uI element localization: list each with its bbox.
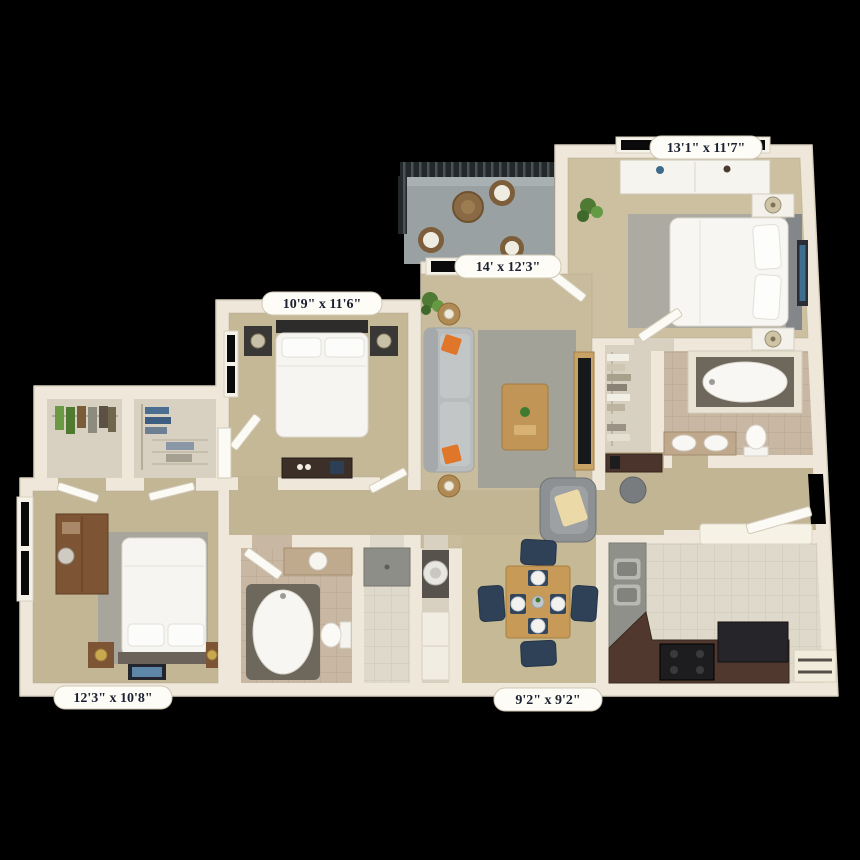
tv-console [574, 352, 594, 470]
side-table [438, 475, 460, 497]
pillow [752, 224, 781, 270]
nightstand [88, 642, 114, 668]
floor-picture [128, 664, 166, 680]
bedroom-2-window [224, 331, 238, 397]
faucet [709, 379, 715, 385]
bathtub [246, 584, 320, 680]
open-door-leaning [218, 428, 231, 478]
tv [578, 358, 591, 464]
master-bed [670, 214, 802, 330]
nightstand [752, 328, 794, 350]
pillow [168, 624, 204, 646]
vanity [284, 548, 352, 575]
armchair [540, 478, 596, 542]
lamp [95, 649, 107, 661]
pillow [325, 338, 364, 357]
dining-chair [520, 539, 556, 566]
balcony-railing [400, 162, 558, 177]
laptop [330, 461, 344, 474]
bathroom-2 [364, 548, 410, 586]
corner-shelf [794, 650, 836, 682]
bottle-decor [724, 166, 731, 173]
pillow [282, 338, 321, 357]
sink [672, 435, 696, 451]
folded-clothes [166, 454, 192, 462]
dimension-label-kitchen: 9'2" x 9'2" [494, 688, 602, 711]
office-chair [620, 477, 646, 503]
pillow [128, 624, 164, 646]
faucet [280, 593, 286, 599]
bed-platform [118, 652, 210, 664]
svg-text:12'3" x 10'8": 12'3" x 10'8" [73, 691, 152, 706]
patio-chair [489, 180, 515, 206]
lamp [377, 334, 391, 348]
floorplan-image: 13'1" x 11'7" 14' x 12'3" 10'9" x 11'6" … [0, 0, 860, 860]
nightstand [206, 642, 218, 668]
balcony [398, 162, 558, 264]
dimension-label-living-room: 14' x 12'3" [455, 255, 561, 278]
vase [656, 166, 664, 174]
sink [309, 552, 327, 570]
toilet [744, 425, 768, 456]
folded-clothes [166, 442, 194, 450]
wall-art [797, 240, 808, 306]
bedroom-3-bed [118, 538, 210, 664]
bedroom-3-dresser [56, 514, 108, 594]
nightstand [370, 326, 398, 356]
desk [282, 458, 352, 478]
nightstand [244, 326, 272, 356]
svg-text:13'1" x 11'7": 13'1" x 11'7" [667, 141, 746, 156]
floorplan-svg: 13'1" x 11'7" 14' x 12'3" 10'9" x 11'6" … [0, 0, 860, 860]
double-vanity [664, 432, 736, 455]
sofa [424, 328, 474, 472]
svg-text:14' x 12'3": 14' x 12'3" [476, 260, 541, 275]
pillow [752, 274, 781, 320]
bedroom-2-bed [276, 320, 368, 437]
monitor [610, 456, 620, 469]
sink [704, 435, 728, 451]
lamp [251, 334, 265, 348]
bedroom-3-window [17, 497, 33, 601]
coffee-table [502, 384, 548, 450]
laundry-closet [422, 550, 449, 680]
side-table [438, 303, 460, 325]
garden-tub [688, 351, 802, 413]
headboard [276, 320, 368, 333]
master-dresser [620, 160, 770, 194]
mirror [58, 548, 74, 564]
refrigerator [718, 622, 788, 662]
dimension-label-bedroom-3: 12'3" x 10'8" [54, 686, 172, 709]
toilet [321, 622, 351, 648]
patio-chair [418, 227, 444, 253]
dining-chair [571, 585, 598, 622]
drain [385, 565, 390, 570]
stove [660, 644, 714, 680]
dining-chair [478, 585, 505, 622]
lamp [207, 650, 217, 660]
svg-text:9'2" x 9'2": 9'2" x 9'2" [515, 693, 580, 708]
nightstand [752, 194, 794, 217]
dining-table [506, 566, 570, 638]
dimension-label-master-bedroom: 13'1" x 11'7" [650, 136, 762, 159]
table-plant [520, 407, 530, 417]
dining-chair [520, 640, 556, 667]
dimension-label-bedroom-2: 10'9" x 11'6" [262, 292, 382, 315]
svg-text:10'9" x 11'6": 10'9" x 11'6" [283, 297, 362, 312]
